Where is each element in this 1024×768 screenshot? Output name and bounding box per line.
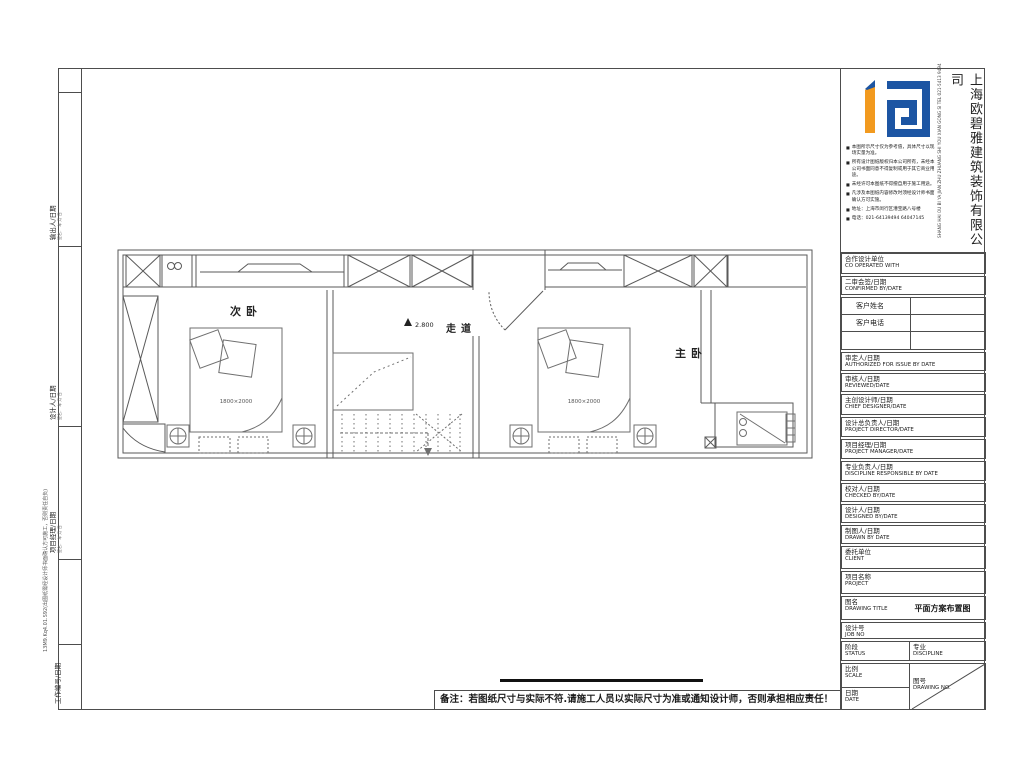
row-drawn: 制图人/日期DRAWN BY DATE <box>841 525 986 544</box>
row-co-operated: 合作设计单位CO OPERATED WITH <box>841 253 986 274</box>
row-discipline-responsible: 专业负责人/日期DISCIPLINE RESPONSIBLE BY DATE <box>841 461 986 481</box>
row-client-name: 客户姓名 <box>842 298 985 315</box>
company-name: 上海欧碧雅建筑装饰有限公司 <box>946 73 984 249</box>
title-block-rows: 合作设计单位CO OPERATED WITH 二审会签/日期CONFIRMED … <box>841 253 986 710</box>
row-project-manager: 项目经理/日期PROJECT MANAGER/DATE <box>841 439 986 459</box>
drawing-title-label: 图名DRAWING TITLE <box>842 597 900 619</box>
discipline-cell: 专业DISCIPLINE <box>910 642 985 660</box>
edge-section-designed-by: 设计人/日期签名： 年 月 日 <box>58 247 82 427</box>
title-block-header: SHANG HAI OU BI YA JIAN ZHU ZHUANG SHI Y… <box>841 68 986 253</box>
row-authorized: 审定人/日期AUTHORIZED FOR ISSUE BY DATE <box>841 352 986 371</box>
remark-note: 备注：若图纸尺寸与实际不符.请施工人员以实际尺寸为准或通知设计师，否则承担相应责… <box>434 690 841 710</box>
row-scale-date-drawingno: 比例SCALE 日期DATE 图号DRAWING NO. <box>841 663 986 710</box>
bullet-icon: ■ <box>846 216 850 222</box>
general-notes-list: ■本图所示尺寸仅为参考值，具体尺寸以现场实量为准。 ■所有设计图纸版权归本公司所… <box>846 145 936 225</box>
note-item: ■地址：上海市闵行区漕宝路八号楼 <box>846 207 936 213</box>
edge-sub-label: 签名： 年 月 日 <box>57 205 62 240</box>
edge-section-plot-by: 输出人/日期签名： 年 月 日 <box>58 93 82 247</box>
company-logo-icon <box>853 76 933 142</box>
edge-section <box>58 560 82 645</box>
edge-label: 输出人/日期 <box>49 205 57 240</box>
drawing-no-cell: 图号DRAWING NO. <box>910 664 985 709</box>
row-confirmed: 二审会签/日期CONFIRMED BY/DATE <box>841 276 986 295</box>
bullet-icon: ■ <box>846 160 850 179</box>
section-cut-line <box>500 679 703 682</box>
drawing-title-value: 平面方案布置图 <box>900 597 985 619</box>
row-drawing-title: 图名DRAWING TITLE 平面方案布置图 <box>841 596 986 620</box>
row-chief-designer: 主创设计师/日期CHIEF DESIGNER/DATE <box>841 394 986 415</box>
title-block: SHANG HAI OU BI YA JIAN ZHU ZHUANG SHI Y… <box>840 68 985 710</box>
note-item: ■凡涉及本图纸内容修改时须经设计师书面确认方可实施。 <box>846 191 936 203</box>
bullet-icon: ■ <box>846 145 850 157</box>
row-project: 项目名称PROJECT <box>841 571 986 594</box>
status-cell: 阶段STATUS <box>842 642 910 660</box>
edge-sub-label: 签名： 年 月 日 <box>57 512 62 553</box>
edge-sub-label: 签名： 年 月 日 <box>57 385 62 420</box>
date-cell: 日期DATE <box>842 688 909 709</box>
row-client-blank <box>842 332 985 349</box>
left-edge-strip: 输出人/日期签名： 年 月 日 设计人/日期签名： 年 月 日 项目经理/日期签… <box>58 68 82 710</box>
edge-section <box>58 68 82 93</box>
row-job-no: 设计号JOB NO <box>841 622 986 639</box>
row-designed: 设计人/日期DESIGNED BY/DATE <box>841 504 986 523</box>
edge-label: 项目经理/日期 <box>49 512 57 553</box>
row-project-director: 设计总负责人/日期PROJECT DIRECTOR/DATE <box>841 417 986 437</box>
edge-label: 设计人/日期 <box>49 385 57 420</box>
client-info-table: 客户姓名 客户电话 <box>841 297 986 350</box>
edge-section-job-number: 工作编号/日期 <box>58 645 82 710</box>
bullet-icon: ■ <box>846 191 850 203</box>
drawing-no-label: 图号DRAWING NO. <box>913 677 951 692</box>
row-client-phone: 客户电话 <box>842 315 985 332</box>
note-item: ■本图所示尺寸仅为参考值，具体尺寸以现场实量为准。 <box>846 145 936 157</box>
drawing-sheet: 次卧 走道 主卧 2.800 1800×2000 1800×2000 输出人/日… <box>0 0 1024 768</box>
row-reviewed: 审核人/日期REVIEWED/DATE <box>841 373 986 392</box>
edge-section-project-manager: 项目经理/日期签名： 年 月 日 <box>58 427 82 560</box>
plot-stamp-text: 13M9.Kq4.01.S92(出图纸需经设计师书面确认方可施工，否则责任自负) <box>42 489 49 652</box>
row-client: 委托单位CLIENT <box>841 546 986 569</box>
row-checked: 校对人/日期CHECKED BY/DATE <box>841 483 986 502</box>
bullet-icon: ■ <box>846 182 850 188</box>
bullet-icon: ■ <box>846 207 850 213</box>
edge-label: 工作编号/日期 <box>54 663 62 704</box>
scale-cell: 比例SCALE <box>842 664 909 688</box>
company-pinyin-text: SHANG HAI OU BI YA JIAN ZHU ZHUANG SHI Y… <box>937 63 942 238</box>
note-item: ■未经许可本图纸不得擅自用于施工用途。 <box>846 182 936 188</box>
row-status-discipline: 阶段STATUS 专业DISCIPLINE <box>841 641 986 661</box>
note-item: ■所有设计图纸版权归本公司所有，未经本公司书面同意不得复制或用于其它商业用途。 <box>846 160 936 179</box>
note-item: ■电话：021-64139494 64047145 <box>846 216 936 222</box>
